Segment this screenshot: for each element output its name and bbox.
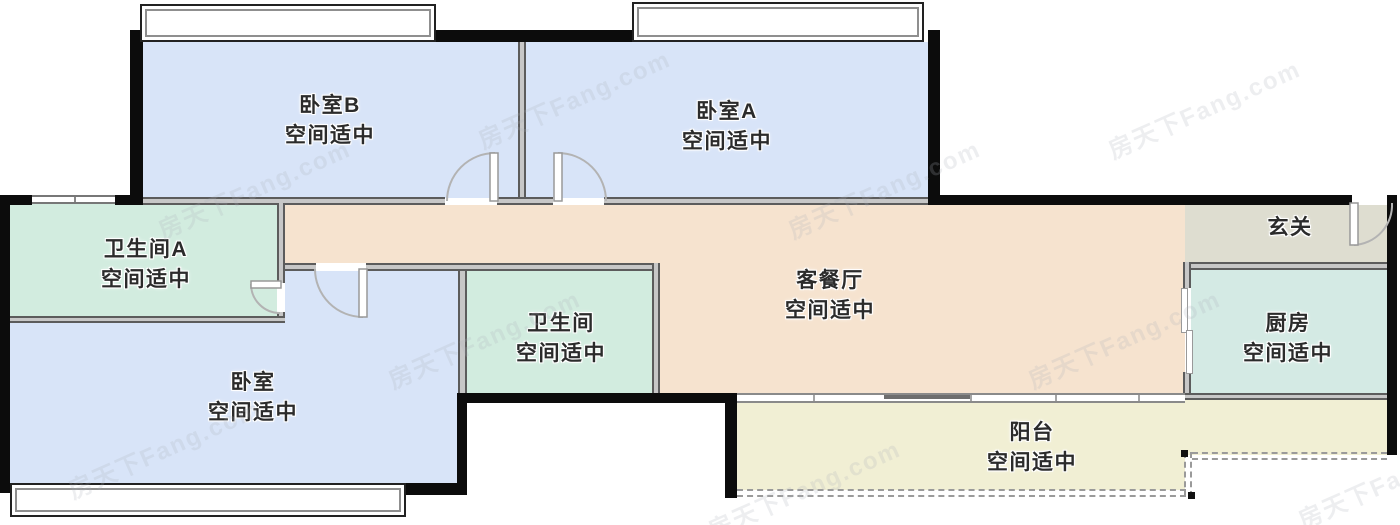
room-bathroom-a bbox=[10, 203, 277, 317]
wall-living-bedroom-left bbox=[285, 263, 316, 271]
wall-bedroom-partition bbox=[518, 42, 526, 197]
room-living-dining bbox=[660, 263, 1185, 394]
wall-bathroom-a-bottom bbox=[10, 316, 285, 323]
window-bathroom-a bbox=[32, 195, 115, 204]
window-mullion bbox=[1138, 395, 1140, 401]
wall-exterior-left bbox=[0, 195, 10, 493]
room-bedroom bbox=[10, 323, 458, 483]
bay-window-bedroom-a bbox=[632, 2, 924, 42]
room-entrance bbox=[1185, 205, 1387, 262]
floor-plan: 卧室B 空间适中 卧室A 空间适中 卫生间A 空间适中 卧室 空间适中 卫生间 … bbox=[0, 0, 1400, 525]
wall-step-vertical bbox=[457, 393, 467, 493]
window-mullion bbox=[970, 395, 972, 401]
wall-bathroom-a-top-right bbox=[115, 195, 143, 205]
wall-top-right bbox=[928, 195, 1352, 205]
window-balcony bbox=[737, 393, 1185, 403]
wall-bathroom-right bbox=[652, 263, 660, 393]
wall-bedrooms-bottom-right bbox=[604, 197, 928, 205]
bay-window-bedroom bbox=[10, 483, 406, 517]
room-living-dining-top bbox=[285, 205, 1185, 263]
boundary-handle bbox=[1181, 450, 1188, 457]
wall-living-bedroom-right bbox=[366, 263, 660, 271]
room-balcony-ext bbox=[1185, 400, 1387, 455]
dashed-boundary-bottom bbox=[737, 489, 1186, 497]
room-bedroom-a bbox=[526, 42, 928, 198]
wall-top-middle bbox=[433, 30, 633, 42]
room-bathroom bbox=[467, 271, 652, 393]
kitchen-sliding-door-panel bbox=[1181, 288, 1188, 333]
room-balcony bbox=[737, 403, 1185, 490]
wall-bedrooms-bottom-mid bbox=[497, 197, 553, 205]
wall-kitchen-top bbox=[1185, 262, 1397, 270]
window-mullion bbox=[813, 395, 815, 401]
bay-window-frame bbox=[637, 7, 919, 37]
wall-kitchen-bottom bbox=[1183, 393, 1397, 400]
room-bedroom-b bbox=[142, 42, 518, 198]
window-mullion bbox=[1055, 395, 1057, 401]
bay-window-frame bbox=[15, 488, 401, 512]
room-bedroom-arm bbox=[285, 271, 458, 323]
wall-exterior-right bbox=[1387, 195, 1397, 455]
wall-bedroom-a-right bbox=[928, 30, 940, 200]
wall-bottom-middle bbox=[457, 393, 737, 403]
watermark-text: 房天下Fang.com bbox=[1102, 49, 1306, 165]
bay-window-bedroom-b bbox=[140, 4, 436, 42]
wall-kitchen-left-upper bbox=[1183, 262, 1191, 288]
dashed-boundary-right bbox=[1192, 452, 1387, 460]
wall-bedroom-right bbox=[458, 271, 467, 393]
bay-window-frame bbox=[145, 9, 431, 37]
wall-balcony-left bbox=[725, 393, 737, 498]
room-kitchen bbox=[1191, 270, 1387, 393]
wall-bedrooms-bottom-left bbox=[142, 197, 445, 205]
kitchen-sliding-door-panel bbox=[1186, 330, 1193, 374]
wall-bathroom-a-right-upper bbox=[277, 203, 285, 283]
boundary-handle bbox=[1188, 492, 1195, 499]
wall-bedroom-b-left bbox=[130, 30, 143, 203]
window-divider bbox=[74, 197, 76, 202]
balcony-sliding-panel bbox=[884, 395, 970, 399]
